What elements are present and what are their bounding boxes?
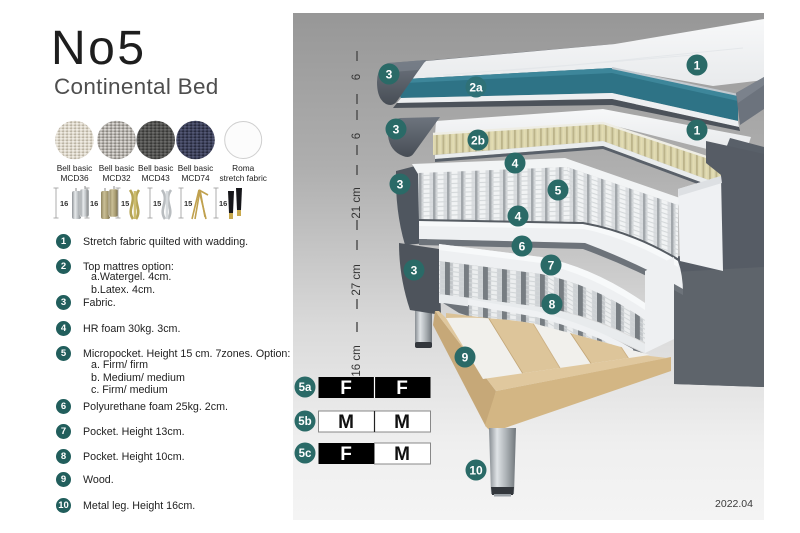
svg-text:M: M [338,412,354,433]
svg-text:Bell basic: Bell basic [138,163,174,173]
svg-text:MCD43: MCD43 [142,173,171,183]
svg-text:15: 15 [184,199,192,208]
svg-text:21 cm: 21 cm [351,187,363,218]
svg-text:MCD74: MCD74 [181,173,210,183]
svg-text:5c: 5c [299,448,312,460]
svg-text:5b: 5b [298,416,311,428]
svg-text:M: M [394,444,410,465]
svg-text:4: 4 [512,156,519,170]
svg-text:Roma: Roma [232,163,255,173]
svg-text:Bell basic: Bell basic [99,163,135,173]
svg-text:1: 1 [694,58,701,72]
svg-text:Bell basic: Bell basic [178,163,214,173]
svg-text:4: 4 [515,209,522,223]
svg-text:Bell basic: Bell basic [57,163,93,173]
svg-text:2022.04: 2022.04 [715,498,753,510]
svg-text:15: 15 [153,199,161,208]
svg-text:5a: 5a [299,382,312,394]
svg-text:1: 1 [694,123,701,137]
svg-text:7: 7 [548,258,555,272]
svg-text:16: 16 [60,199,68,208]
svg-text:MCD32: MCD32 [102,173,131,183]
svg-text:F: F [396,378,408,399]
svg-text:9: 9 [462,350,469,364]
svg-text:16: 16 [90,199,98,208]
svg-text:16 cm: 16 cm [351,345,363,376]
svg-text:F: F [340,444,352,465]
svg-text:6: 6 [351,133,363,139]
svg-text:3: 3 [411,263,418,277]
svg-text:10: 10 [469,463,483,477]
svg-text:M: M [394,412,410,433]
svg-text:8: 8 [549,297,556,311]
svg-text:MCD36: MCD36 [60,173,89,183]
svg-text:3: 3 [393,122,400,136]
svg-text:6: 6 [519,239,526,253]
svg-text:15: 15 [121,199,129,208]
svg-text:2b: 2b [471,133,485,147]
svg-text:stretch fabric: stretch fabric [219,173,267,183]
svg-text:F: F [340,378,352,399]
svg-text:16: 16 [219,199,227,208]
svg-text:5: 5 [555,183,562,197]
svg-text:2a: 2a [469,80,483,94]
svg-text:3: 3 [386,67,393,81]
svg-text:27 cm: 27 cm [351,264,363,295]
svg-text:3: 3 [397,177,404,191]
svg-text:6: 6 [351,74,363,80]
